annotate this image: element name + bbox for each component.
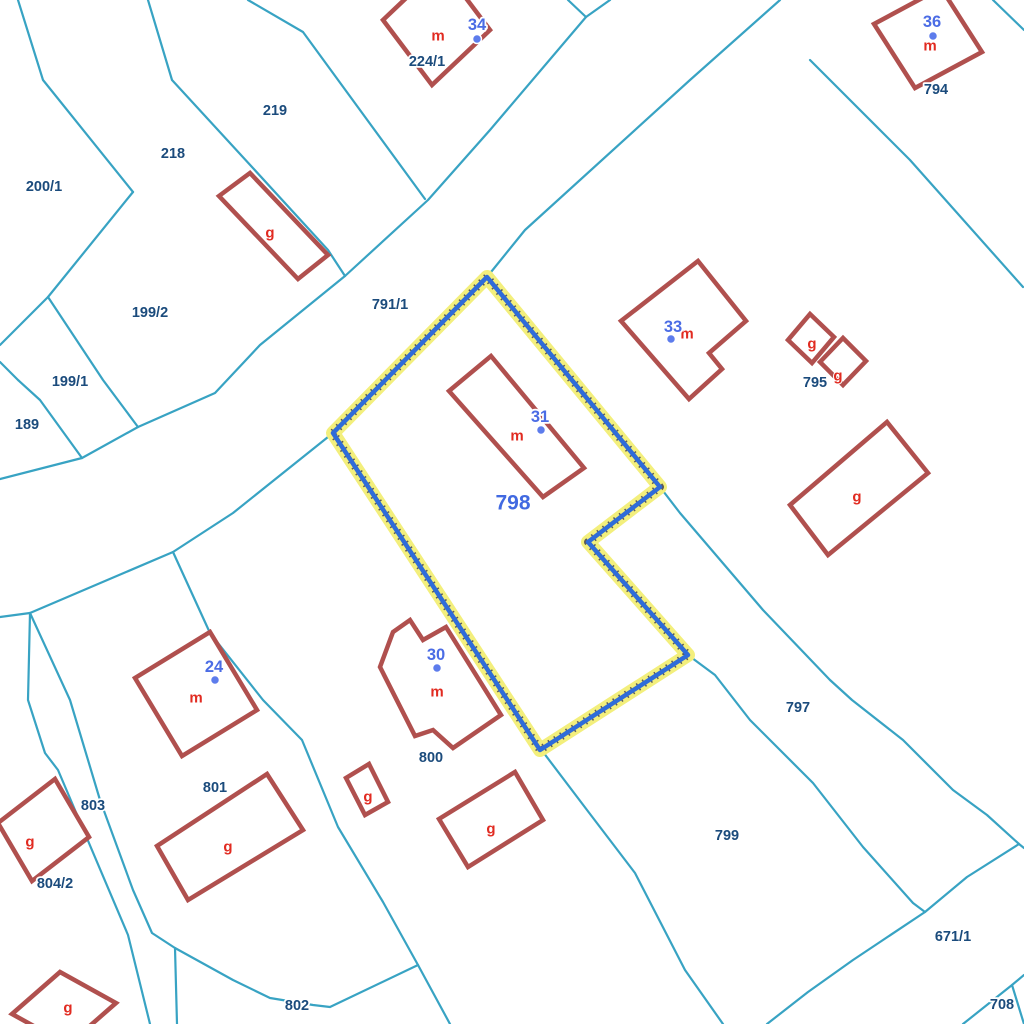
parcel-label-802[interactable]: 802 [285,998,309,1014]
house-number-34: 34 [468,16,487,34]
address-point-dot-34 [473,35,482,44]
building-type-letter-m-4: m [430,684,443,701]
parcel-label-199-2[interactable]: 199/2 [132,305,168,321]
parcel-label-199-1[interactable]: 199/1 [52,374,88,390]
parcel-label-800[interactable]: 800 [419,750,443,766]
house-number-24: 24 [205,658,224,676]
building-type-letter-g-9: g [852,489,861,506]
parcel-label-797[interactable]: 797 [786,700,810,716]
selected-parcel-label-798[interactable]: 798 [495,492,530,515]
parcel-label-218[interactable]: 218 [161,146,185,162]
building-type-letter-g-14: g [63,1000,72,1017]
cadastral-map-canvas[interactable]: 219218200/1224/1199/2199/1189791/1794795… [0,0,1024,1024]
parcel-label-219[interactable]: 219 [263,103,287,119]
building-type-letter-g-11: g [25,834,34,851]
building-type-letter-m-2: m [680,326,693,343]
address-point-dot-30 [433,664,442,673]
map-viewport[interactable]: 219218200/1224/1199/2199/1189791/1794795… [0,0,1024,1024]
building-type-letter-g-10: g [223,839,232,856]
building-type-letter-g-7: g [807,336,816,353]
parcel-label-708[interactable]: 708 [990,997,1014,1013]
parcel-label-801[interactable]: 801 [203,780,227,796]
building-type-letter-g-8: g [833,368,842,385]
house-number-33: 33 [664,318,682,336]
building-type-letter-m-3: m [510,428,523,445]
building-type-letter-m-0: m [431,28,444,45]
parcel-label-189[interactable]: 189 [15,417,39,433]
parcel-label-671-1[interactable]: 671/1 [935,929,971,945]
house-number-36: 36 [923,13,941,31]
parcel-label-803[interactable]: 803 [81,798,105,814]
address-point-dot-33 [667,335,676,344]
address-point-dot-31 [537,426,546,435]
parcel-label-794[interactable]: 794 [924,82,948,98]
building-type-letter-g-13: g [486,821,495,838]
parcel-label-795[interactable]: 795 [803,375,827,391]
parcel-label-224-1[interactable]: 224/1 [409,54,445,70]
parcel-label-200-1[interactable]: 200/1 [26,179,62,195]
building-type-letter-g-12: g [363,789,372,806]
parcel-label-799[interactable]: 799 [715,828,739,844]
parcel-label-791-1[interactable]: 791/1 [372,297,408,313]
house-number-30: 30 [427,646,445,664]
house-number-31: 31 [531,408,549,426]
building-type-letter-m-5: m [189,690,202,707]
parcel-label-804-2[interactable]: 804/2 [37,876,73,892]
address-point-dot-36 [929,32,938,41]
building-type-letter-g-6: g [265,225,274,242]
address-point-dot-24 [211,676,220,685]
